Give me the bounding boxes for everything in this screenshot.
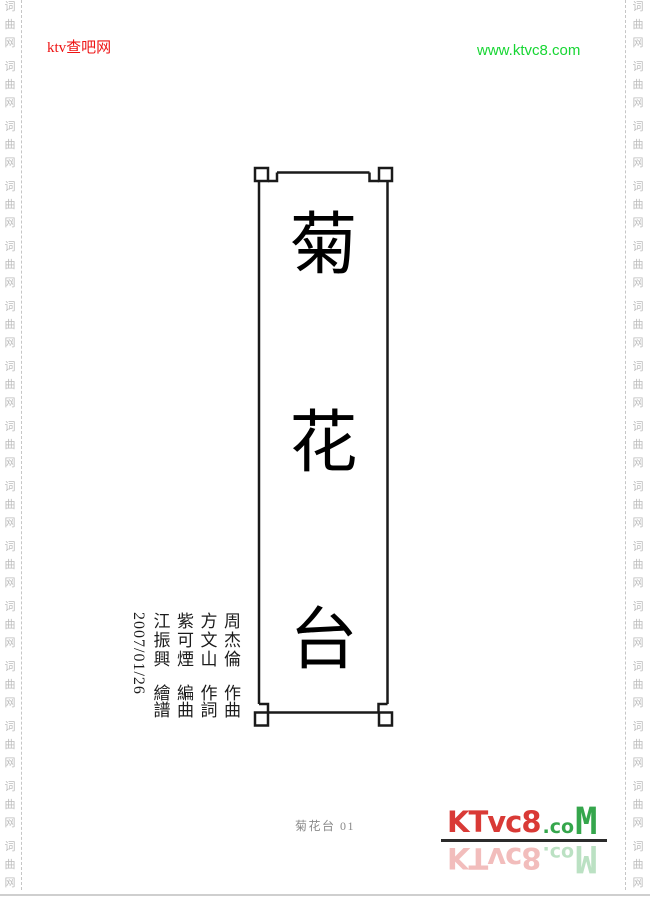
credit-lyricist: 方文山 作詞: [197, 612, 218, 718]
transcriber-role: 繪譜: [148, 684, 173, 718]
page-bottom-edge: [0, 894, 650, 896]
logo-reflection-part-m: M: [575, 843, 597, 873]
ktvc8-logo-reflection: KTvc8 .co M: [441, 843, 607, 878]
lyricist-name: 方文山: [195, 612, 220, 669]
frame-corner-square-tl: [255, 168, 268, 181]
frame-corner-square-br: [379, 713, 392, 726]
song-title-char-2: 花: [259, 409, 388, 477]
credits-block: 周杰倫 作曲 方文山 作詞 紫可煙 編曲 江振興 繪譜 2007/01/26: [129, 612, 241, 718]
song-title-char-3: 台: [259, 606, 388, 674]
ktvc8-logo-text: KTvc8 .co M: [441, 802, 607, 837]
frame-corner-step-bl: [259, 704, 268, 713]
logo-reflection-part-dotco: .co: [543, 843, 575, 862]
credit-arranger: 紫可煙 編曲: [173, 612, 194, 718]
arranger-role: 編曲: [171, 684, 196, 718]
frame-corner-step-br: [379, 704, 388, 713]
credit-transcriber: 江振興 繪譜: [150, 612, 171, 718]
frame-corner-step-tl: [268, 173, 277, 182]
composer-role: 作曲: [218, 684, 243, 718]
logo-reflection-part-red: KTvc8: [447, 843, 541, 871]
ktvc8-logo[interactable]: KTvc8 .co M KTvc8 .co M: [441, 802, 607, 878]
logo-part-dotco: .co: [543, 818, 575, 837]
frame-corner-step-tr: [370, 173, 380, 182]
credit-date: 2007/01/26: [129, 612, 147, 718]
frame-corner-square-bl: [255, 713, 268, 726]
composer-name: 周杰倫: [218, 612, 243, 669]
lyricist-role: 作詞: [195, 684, 220, 718]
credit-composer: 周杰倫 作曲: [220, 612, 241, 718]
arranger-name: 紫可煙: [171, 612, 196, 669]
logo-part-m: M: [575, 807, 597, 837]
song-title-char-1: 菊: [259, 211, 388, 279]
logo-part-red: KTvc8: [447, 809, 541, 837]
frame-corner-square-tr: [379, 168, 392, 181]
transcriber-name: 江振興: [148, 612, 173, 669]
